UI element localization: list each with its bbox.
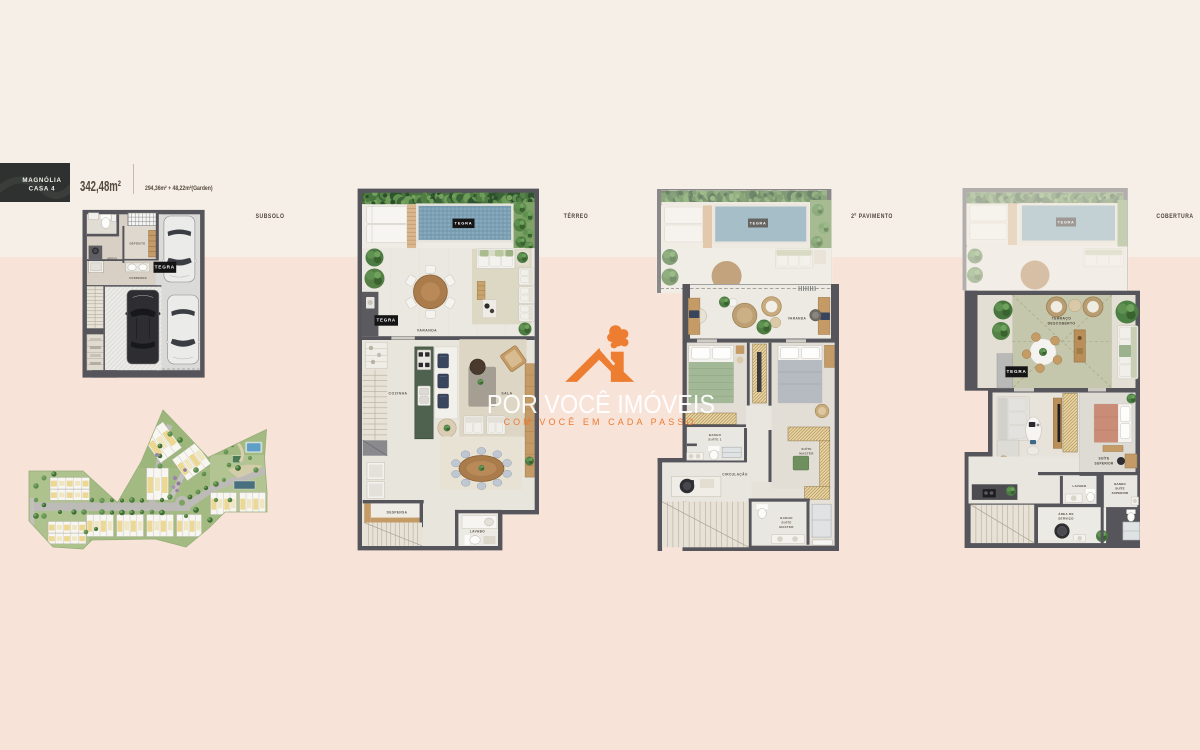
svg-text:SUÍTE: SUÍTE xyxy=(781,520,791,525)
svg-text:CORREDOR: CORREDOR xyxy=(129,276,147,280)
svg-text:SUPERIOR: SUPERIOR xyxy=(1112,491,1129,495)
svg-text:DESCOBERTO: DESCOBERTO xyxy=(1048,322,1076,326)
svg-text:TEGRA: TEGRA xyxy=(376,318,395,323)
svg-text:MASTER: MASTER xyxy=(799,452,814,456)
svg-text:DESPENSA: DESPENSA xyxy=(387,511,408,515)
svg-text:BANHO: BANHO xyxy=(780,516,793,520)
svg-text:TERRAÇO: TERRAÇO xyxy=(1052,317,1072,321)
svg-text:SUÍTE: SUÍTE xyxy=(1099,456,1110,461)
svg-text:BANHO: BANHO xyxy=(1114,482,1126,486)
svg-text:LAVABO: LAVABO xyxy=(470,530,486,534)
svg-text:COZINHA: COZINHA xyxy=(389,392,408,396)
svg-text:VARANDA: VARANDA xyxy=(417,329,437,333)
svg-text:MAGNÓLIA: MAGNÓLIA xyxy=(22,176,61,184)
svg-text:SERVIÇO: SERVIÇO xyxy=(1058,517,1074,521)
svg-text:ÁREA DE: ÁREA DE xyxy=(1058,511,1074,516)
svg-text:SUÍTE 1: SUÍTE 1 xyxy=(708,437,721,442)
svg-text:TEGRA: TEGRA xyxy=(155,265,175,270)
svg-text:MASTER: MASTER xyxy=(779,525,794,529)
svg-text:TEGRA: TEGRA xyxy=(455,221,473,226)
svg-text:CIRCULAÇÃO: CIRCULAÇÃO xyxy=(722,472,748,477)
svg-text:TEGRA: TEGRA xyxy=(1007,369,1027,374)
svg-text:SUÍTE: SUÍTE xyxy=(1115,486,1125,491)
svg-text:SUPERIOR: SUPERIOR xyxy=(1094,462,1113,466)
svg-text:CASA 4: CASA 4 xyxy=(29,186,56,193)
svg-text:SUÍTE: SUÍTE xyxy=(801,446,811,451)
svg-text:LAVABO: LAVABO xyxy=(1072,484,1086,488)
svg-text:VARANDA: VARANDA xyxy=(788,317,807,321)
